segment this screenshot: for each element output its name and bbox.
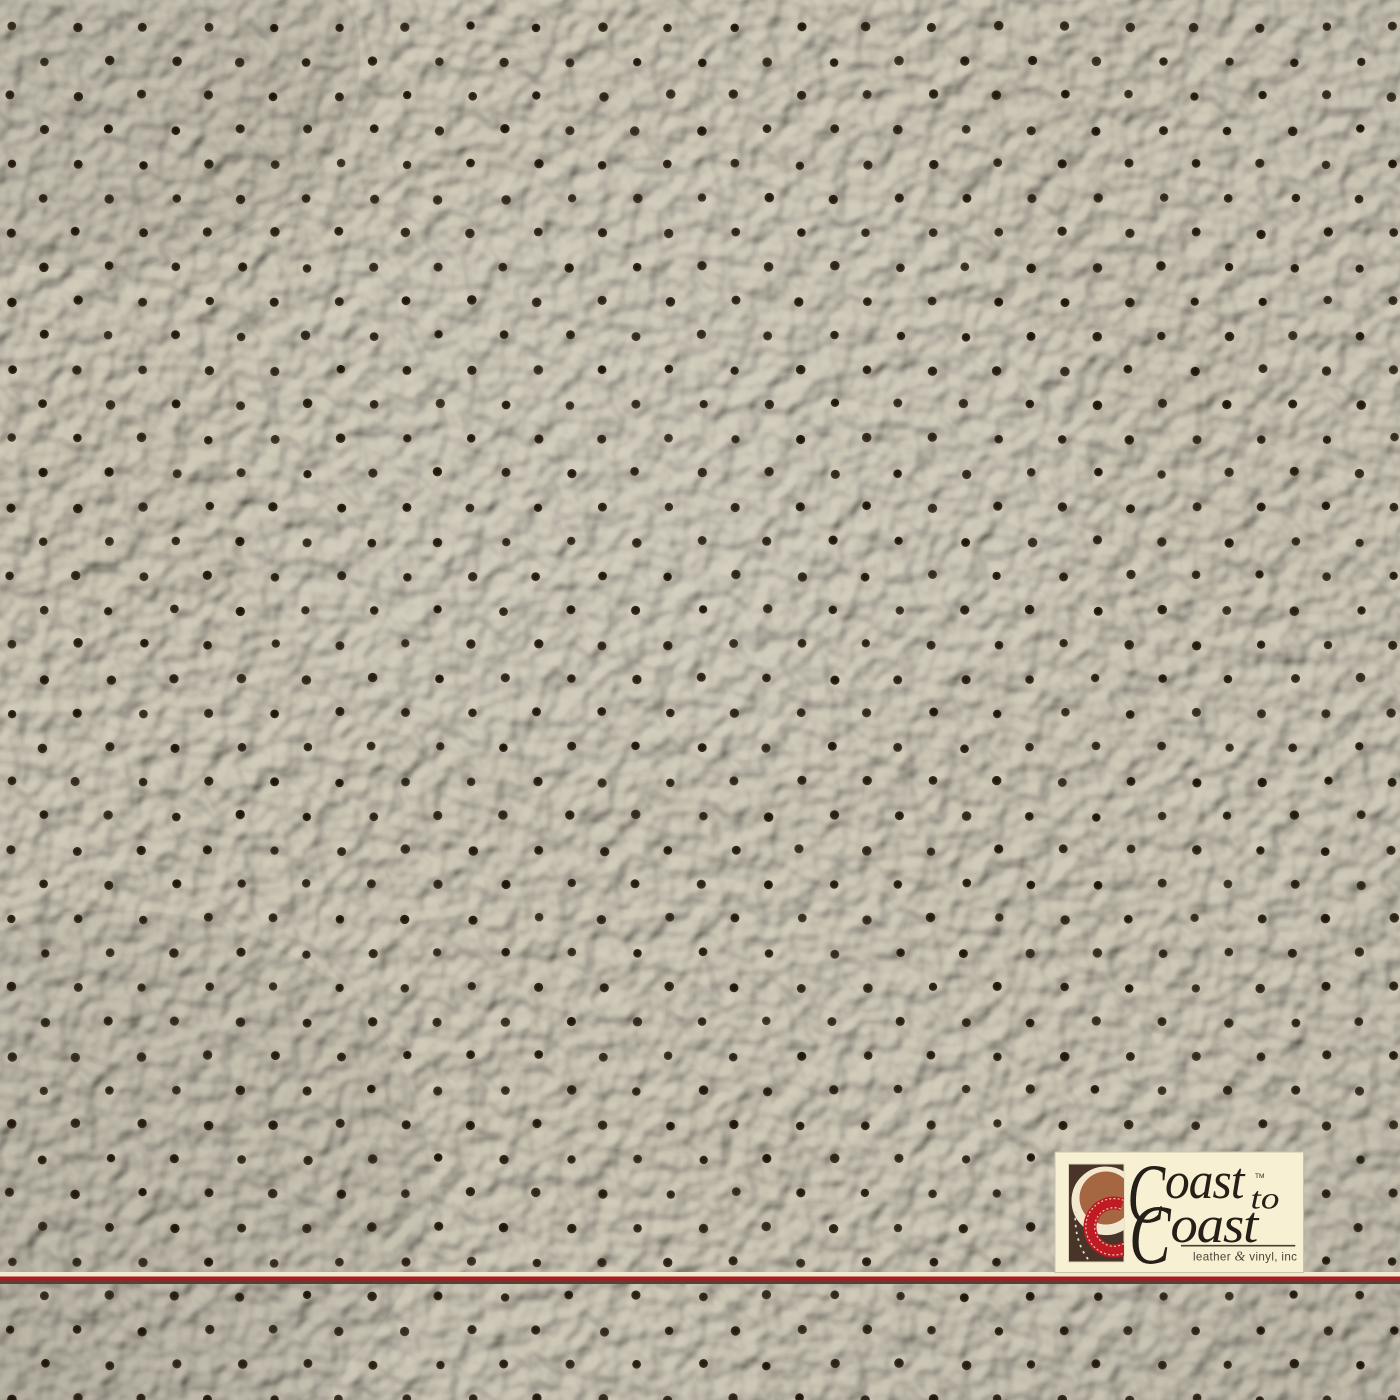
- svg-text:leather & vinyl, inc: leather & vinyl, inc: [1193, 1249, 1297, 1264]
- svg-text:C: C: [1129, 1189, 1172, 1282]
- svg-text:TM: TM: [1255, 1173, 1264, 1180]
